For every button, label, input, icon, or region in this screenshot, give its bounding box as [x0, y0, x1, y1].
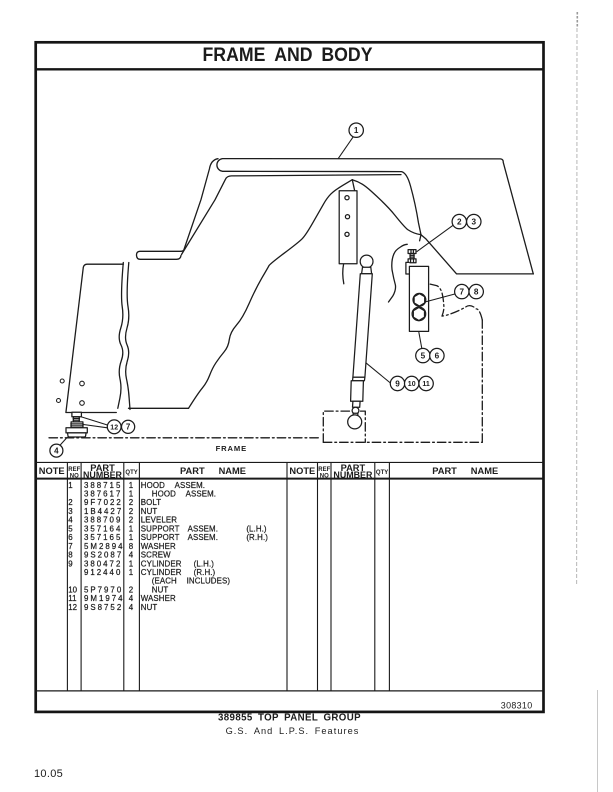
svg-text:1: 1 — [129, 533, 133, 542]
svg-text:PART NAME: PART NAME — [180, 466, 246, 476]
svg-text:FRAME AND BODY: FRAME AND BODY — [203, 45, 373, 66]
svg-text:1: 1 — [354, 126, 359, 135]
svg-text:QTY: QTY — [376, 470, 388, 476]
svg-text:2: 2 — [129, 498, 133, 507]
svg-text:9S8752: 9S8752 — [84, 603, 123, 612]
svg-text:2: 2 — [129, 507, 133, 516]
svg-text:G.S. And L.P.S. Features: G.S. And L.P.S. Features — [226, 726, 360, 736]
svg-text:NUT: NUT — [141, 507, 158, 516]
svg-text:388709: 388709 — [84, 516, 122, 525]
svg-text:387617: 387617 — [84, 490, 122, 499]
svg-text:1: 1 — [129, 524, 133, 533]
svg-text:SUPPORT ASSEM. (L.H.): SUPPORT ASSEM. (L.H.) — [141, 524, 267, 533]
svg-text:NO: NO — [320, 473, 329, 479]
svg-text:10: 10 — [408, 381, 416, 388]
svg-text:LEVELER: LEVELER — [141, 516, 177, 525]
svg-text:9: 9 — [395, 379, 400, 388]
svg-text:WASHER: WASHER — [141, 594, 176, 603]
svg-text:1: 1 — [129, 559, 133, 568]
svg-text:7: 7 — [460, 288, 465, 297]
svg-text:7: 7 — [126, 423, 131, 432]
svg-text:10.05: 10.05 — [34, 768, 63, 780]
svg-text:10: 10 — [68, 585, 77, 594]
svg-text:9M1974: 9M1974 — [84, 594, 125, 603]
svg-text:1: 1 — [129, 490, 133, 499]
svg-text:4: 4 — [129, 603, 134, 612]
svg-text:9S2087: 9S2087 — [84, 551, 123, 560]
svg-text:8: 8 — [129, 542, 134, 551]
svg-text:1: 1 — [129, 568, 133, 577]
svg-text:4: 4 — [129, 551, 134, 560]
svg-text:BOLT: BOLT — [141, 498, 162, 507]
svg-text:5M2894: 5M2894 — [84, 542, 125, 551]
svg-text:12: 12 — [110, 424, 118, 431]
svg-text:PART NAME: PART NAME — [432, 466, 498, 476]
svg-text:9F7022: 9F7022 — [84, 498, 123, 507]
svg-text:4: 4 — [129, 594, 134, 603]
svg-text:HOOD ASSEM.: HOOD ASSEM. — [141, 481, 205, 490]
svg-text:QTY: QTY — [125, 470, 137, 476]
svg-text:1B4427: 1B4427 — [84, 507, 123, 516]
svg-text:3: 3 — [472, 218, 477, 227]
svg-text:SUPPORT ASSEM. (R.H.): SUPPORT ASSEM. (R.H.) — [141, 533, 268, 542]
svg-text:389855 TOP PANEL GROUP: 389855 TOP PANEL GROUP — [218, 713, 361, 724]
svg-text:HOOD ASSEM.: HOOD ASSEM. — [152, 490, 216, 499]
svg-text:2: 2 — [129, 585, 133, 594]
svg-text:2: 2 — [457, 218, 462, 227]
svg-text:REF: REF — [318, 467, 330, 473]
svg-text:357165: 357165 — [84, 533, 122, 542]
svg-text:6: 6 — [435, 352, 440, 361]
svg-text:8: 8 — [68, 551, 73, 560]
svg-text:388715: 388715 — [84, 481, 122, 490]
svg-text:NOTE: NOTE — [289, 466, 315, 476]
svg-text:NUMBER: NUMBER — [83, 470, 123, 480]
svg-text:9: 9 — [68, 559, 73, 568]
svg-text:NUT: NUT — [152, 585, 169, 594]
svg-text:NOTE: NOTE — [39, 466, 65, 476]
svg-text:8: 8 — [474, 288, 479, 297]
svg-text:5: 5 — [68, 524, 73, 533]
svg-text:4: 4 — [54, 446, 59, 455]
svg-text:357164: 357164 — [84, 524, 122, 533]
svg-text:11: 11 — [422, 381, 430, 388]
svg-text:NUMBER: NUMBER — [333, 470, 373, 480]
svg-text:12: 12 — [68, 603, 77, 612]
svg-text:CYLINDER (L.H.): CYLINDER (L.H.) — [141, 559, 214, 568]
svg-text:(EACH INCLUDES): (EACH INCLUDES) — [152, 577, 231, 586]
svg-text:2: 2 — [129, 516, 133, 525]
svg-text:6: 6 — [68, 533, 73, 542]
svg-text:CYLINDER (R.H.): CYLINDER (R.H.) — [141, 568, 216, 577]
svg-text:1: 1 — [68, 481, 72, 490]
svg-text:11: 11 — [68, 594, 76, 603]
svg-text:7: 7 — [68, 542, 72, 551]
svg-text:3: 3 — [68, 507, 73, 516]
svg-text:WASHER: WASHER — [141, 542, 176, 551]
svg-text:REF: REF — [68, 467, 80, 473]
svg-text:5P7970: 5P7970 — [84, 585, 123, 594]
svg-text:1: 1 — [129, 481, 133, 490]
svg-text:NO: NO — [70, 473, 79, 479]
svg-text:SCREW: SCREW — [141, 551, 171, 560]
svg-text:912440: 912440 — [84, 568, 122, 577]
svg-text:NUT: NUT — [141, 603, 158, 612]
svg-text:FRAME: FRAME — [216, 444, 248, 453]
svg-text:308310: 308310 — [501, 700, 533, 710]
svg-text:4: 4 — [68, 516, 73, 525]
svg-text:2: 2 — [68, 498, 72, 507]
svg-text:380472: 380472 — [84, 559, 122, 568]
svg-text:5: 5 — [421, 352, 426, 361]
